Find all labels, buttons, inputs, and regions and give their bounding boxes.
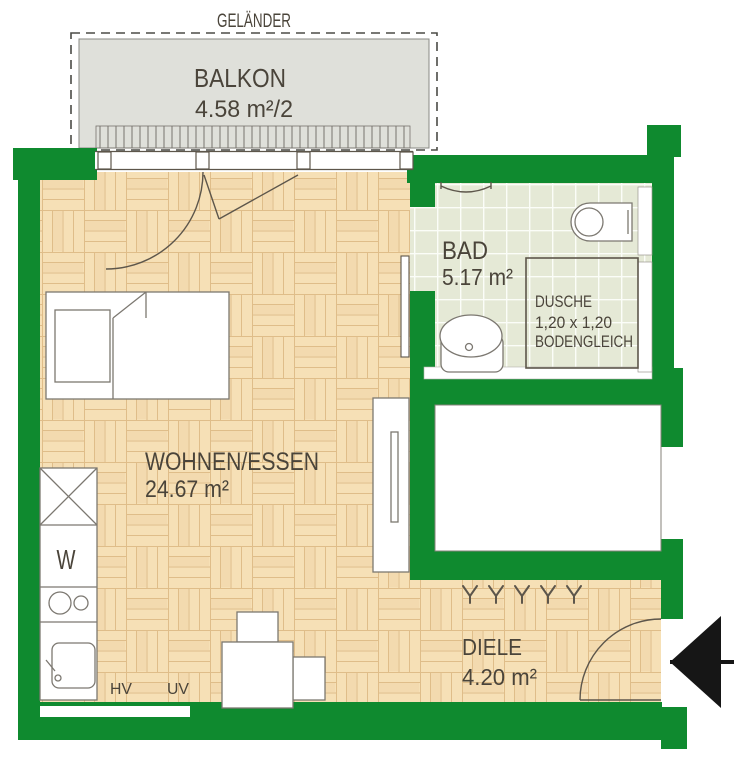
wardrobe-handle [391,432,398,522]
wall-shaft-east-upper [661,405,683,447]
chair-top [237,612,278,642]
bed-pillow [55,310,110,382]
bath-niches [638,187,652,372]
hv-label: HV [110,681,132,698]
wall-shaft-south [410,551,683,580]
hall-area-label: 4.20 m² [462,664,537,690]
wardrobe [373,398,409,572]
shower-size-label: 1,20 x 1,20 [535,313,612,332]
wall-bath-north [407,155,674,183]
glazing-band [95,151,413,170]
toilet [571,203,632,241]
window-band [95,151,413,170]
wall-top-right-stub [647,125,681,157]
railing-label: GELÄNDER [217,11,291,32]
niche-shower [638,262,652,372]
shower-note-label: BODENGLEICH [535,332,633,351]
mullion-1 [98,152,111,169]
bath-name-label: BAD [442,237,488,265]
balcony-grate [96,126,410,148]
balcony-name-label: BALKON [194,63,286,93]
washer-label: W [57,544,76,575]
uv-label: UV [167,681,189,698]
table [222,642,293,708]
washbasin [440,315,503,372]
wall-left [18,148,40,740]
floor-plan-canvas: GELÄNDER BALKON 4.58 m²/2 BAD 5.17 m² DU… [0,0,734,757]
living-name-label: WOHNEN/ESSEN [145,448,319,476]
living-area-label: 24.67 m² [145,476,229,503]
kitchen-counter [40,468,97,700]
bath-sliding-door [401,256,409,357]
wall-bottom-right-stub [661,707,687,749]
chair-right [293,657,325,700]
mullion-3 [297,152,310,169]
niche-toilet [638,187,652,255]
hall-name-label: DIELE [462,634,522,660]
washbasin-bowl [440,315,502,357]
wall-bath-west-lower [410,291,435,380]
mullion-4 [400,152,413,169]
bath-area-label: 5.17 m² [442,264,513,290]
bed [46,292,229,399]
wall-entry-east [661,539,683,619]
wall-slot-window [40,706,190,717]
wall-bath-west-upper [410,183,435,207]
bath-door-floor [410,205,434,292]
entrance-arrow-shaft [670,660,734,664]
toilet-body [571,203,632,241]
entrance-arrow-icon [670,616,734,708]
balcony-area-label: 4.58 m²/2 [195,96,293,123]
shaft-room [435,405,661,551]
floor-plan: GELÄNDER BALKON 4.58 m²/2 BAD 5.17 m² DU… [0,0,734,757]
mullion-2 [196,152,209,169]
shower-title-label: DUSCHE [535,292,592,311]
